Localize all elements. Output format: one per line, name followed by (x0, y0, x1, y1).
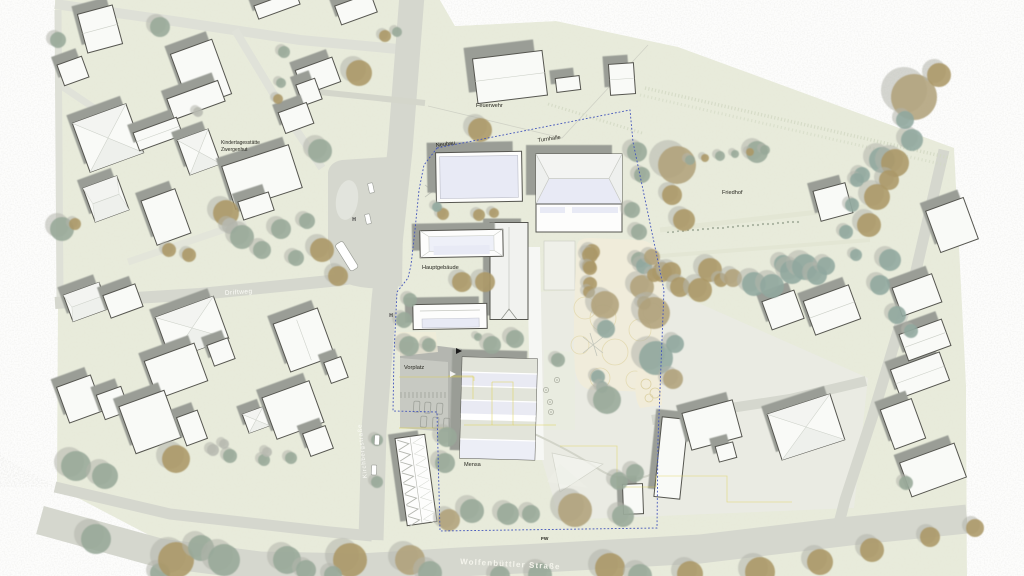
svg-text:FW: FW (541, 536, 549, 542)
svg-text:Kindertagesstätte: Kindertagesstätte (221, 140, 260, 146)
svg-text:Feuerwehr: Feuerwehr (476, 103, 503, 109)
svg-text:Mensa: Mensa (464, 462, 482, 468)
svg-text:H: H (389, 313, 393, 319)
svg-text:Friedhof: Friedhof (722, 190, 743, 196)
svg-text:Vorplatz: Vorplatz (404, 365, 424, 371)
svg-text:H: H (352, 217, 356, 223)
svg-text:Hauptgebäude: Hauptgebäude (422, 265, 459, 271)
svg-text:Zwergenhut: Zwergenhut (221, 147, 248, 153)
